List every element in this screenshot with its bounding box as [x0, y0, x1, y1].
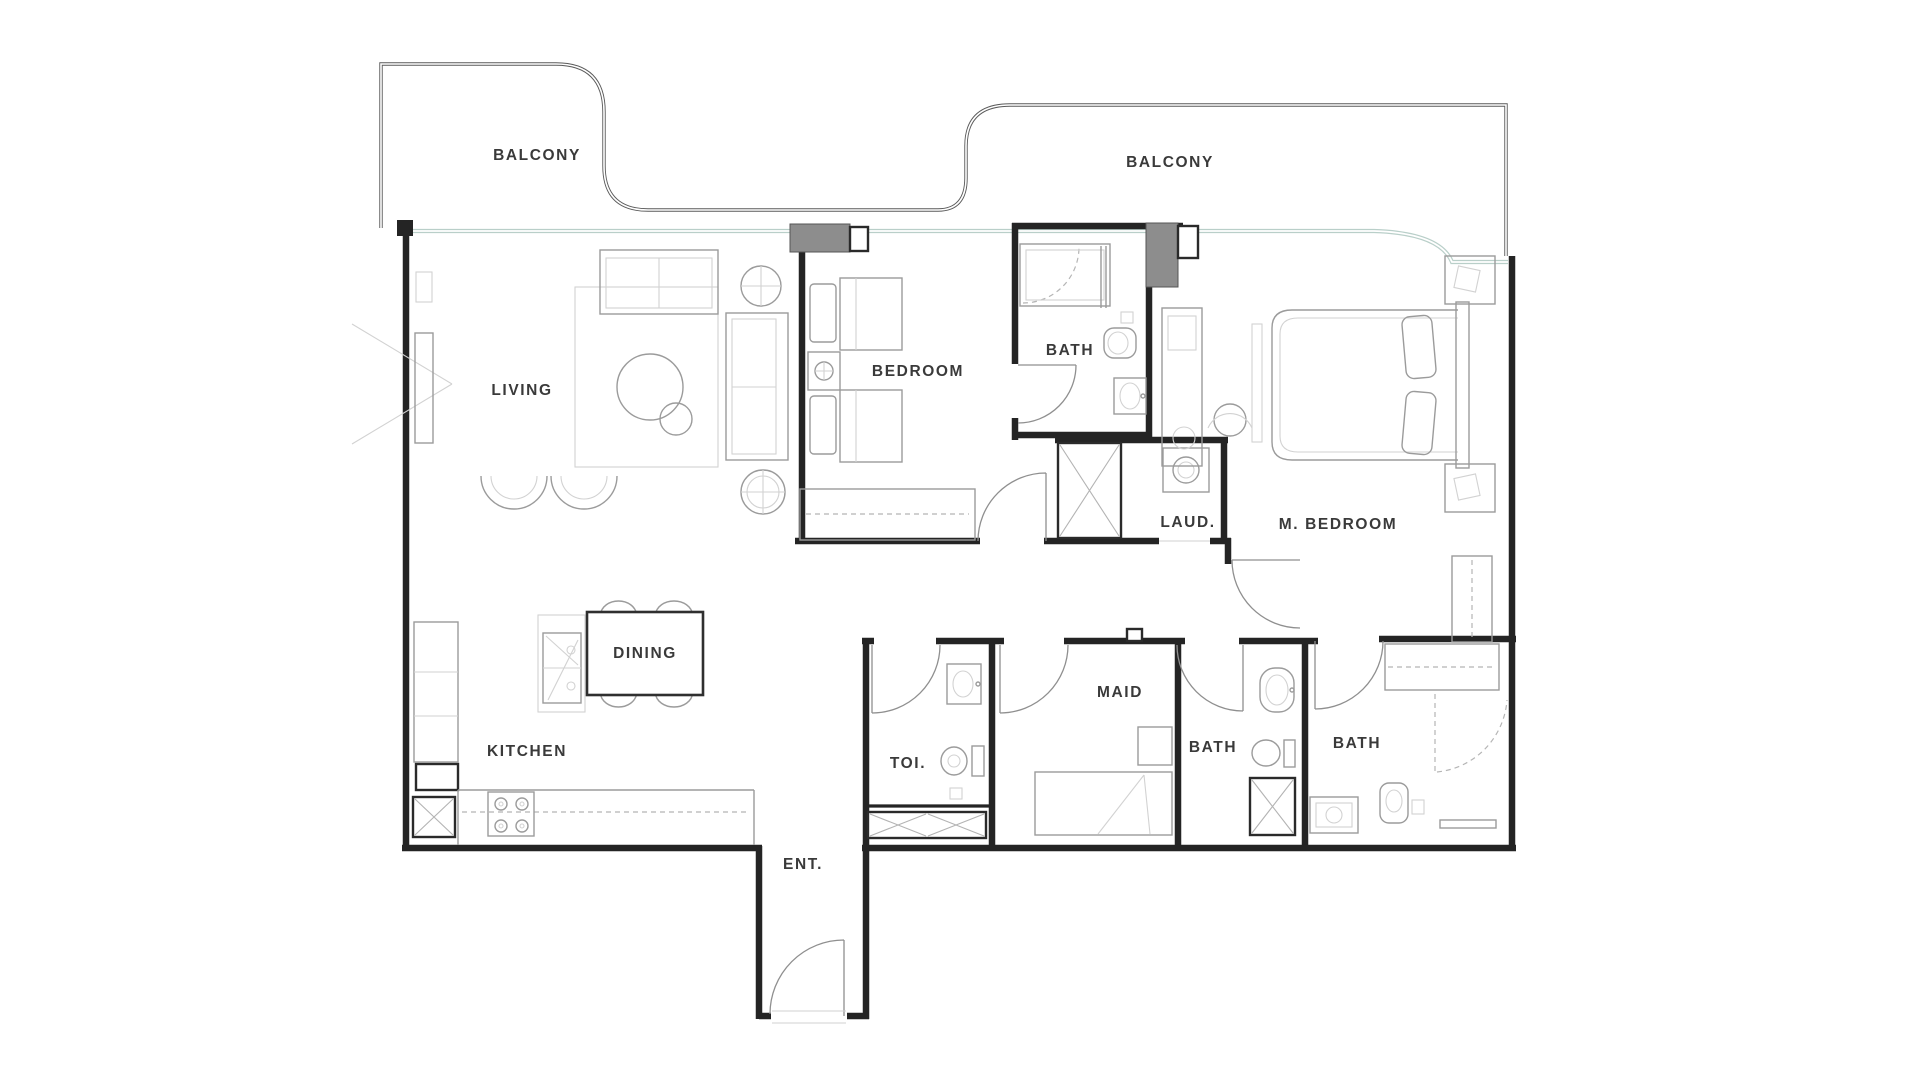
label-master-bedroom: M. BEDROOM — [1279, 516, 1397, 533]
label-toilet: TOI. — [890, 755, 926, 772]
master-sink — [1310, 797, 1358, 833]
pillow — [1401, 315, 1436, 379]
pillow — [810, 284, 836, 342]
label-kitchen: KITCHEN — [487, 743, 567, 760]
label-balcony-right: BALCONY — [1126, 154, 1214, 171]
pillow — [1401, 391, 1436, 455]
maid-bath-fixtures — [1252, 668, 1295, 767]
label-bath-master: BATH — [1333, 735, 1381, 752]
chair — [1214, 404, 1246, 436]
bath-fixtures — [1020, 244, 1146, 414]
headboard — [1456, 302, 1469, 468]
armchair — [481, 476, 547, 509]
label-bath: BATH — [1046, 342, 1094, 359]
label-living: LIVING — [491, 382, 552, 399]
room-labels: BALCONY BALCONY LIVING BEDROOM BATH LAUD… — [487, 147, 1397, 873]
shower — [1020, 244, 1110, 306]
armchair-2 — [551, 476, 617, 509]
label-bedroom: BEDROOM — [872, 363, 964, 380]
nightstand-2 — [1445, 464, 1495, 512]
maid-table — [1138, 727, 1172, 765]
bedroom-furniture — [800, 278, 975, 540]
coffee-table — [617, 354, 683, 420]
master-toilet — [1380, 783, 1408, 823]
shower-drain — [1440, 820, 1496, 828]
label-dining: DINING — [613, 645, 677, 662]
label-bath-maid: BATH — [1189, 739, 1237, 756]
bed — [840, 278, 902, 350]
floor-plan-drawing: BALCONY BALCONY LIVING BEDROOM BATH LAUD… — [0, 0, 1920, 1080]
bed-2 — [840, 390, 902, 462]
toilet-fixtures — [941, 664, 984, 799]
maid-bed — [1035, 772, 1172, 835]
kitchen-island — [538, 615, 585, 712]
pillow-2 — [810, 396, 836, 454]
master-bedroom-furniture — [1162, 256, 1495, 642]
toi-toilet — [941, 747, 967, 775]
tv-console — [415, 333, 433, 443]
living-furniture — [352, 250, 788, 514]
maid-bath-toilet — [1252, 740, 1280, 766]
label-balcony-left: BALCONY — [493, 147, 581, 164]
label-maid: MAID — [1097, 684, 1143, 701]
window-glazing — [410, 231, 1508, 262]
kitchen-cabinets — [414, 622, 458, 762]
walls — [397, 220, 1516, 1019]
label-entrance: ENT. — [783, 856, 823, 873]
master-bed — [1272, 310, 1458, 460]
maid-furniture — [1035, 727, 1172, 835]
floor-plan-page: BALCONY BALCONY LIVING BEDROOM BATH LAUD… — [0, 0, 1920, 1080]
label-laundry: LAUD. — [1160, 514, 1215, 531]
